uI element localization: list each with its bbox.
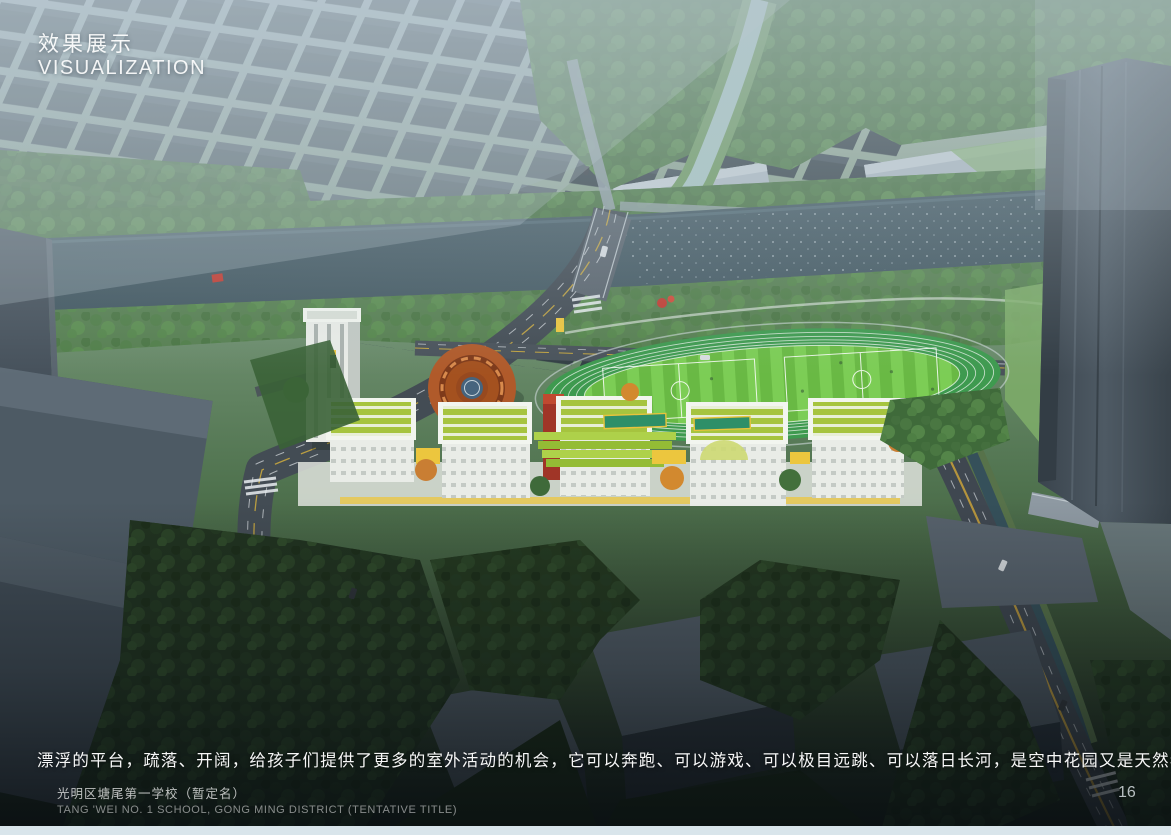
slide-edge-strip bbox=[0, 826, 1171, 835]
project-name-chinese: 光明区塘尾第一学校（暂定名） bbox=[57, 786, 457, 803]
render-scene bbox=[0, 0, 1171, 835]
slide-title: 效果展示 VISUALIZATION bbox=[38, 34, 206, 79]
visualization-slide: 效果展示 VISUALIZATION 漂浮的平台，疏落、开阔，给孩子们提供了更多… bbox=[0, 0, 1171, 835]
project-name-block: 光明区塘尾第一学校（暂定名） TANG 'WEI NO. 1 SCHOOL, G… bbox=[57, 786, 457, 818]
title-english: VISUALIZATION bbox=[38, 58, 206, 79]
project-name-english: TANG 'WEI NO. 1 SCHOOL, GONG MING DISTRI… bbox=[57, 803, 457, 818]
title-chinese: 效果展示 bbox=[38, 34, 206, 56]
vignette bbox=[0, 0, 1171, 835]
page-number: 16 bbox=[1118, 784, 1136, 802]
slide-caption: 漂浮的平台，疏落、开阔，给孩子们提供了更多的室外活动的机会，它可以奔跑、可以游戏… bbox=[37, 747, 1142, 771]
